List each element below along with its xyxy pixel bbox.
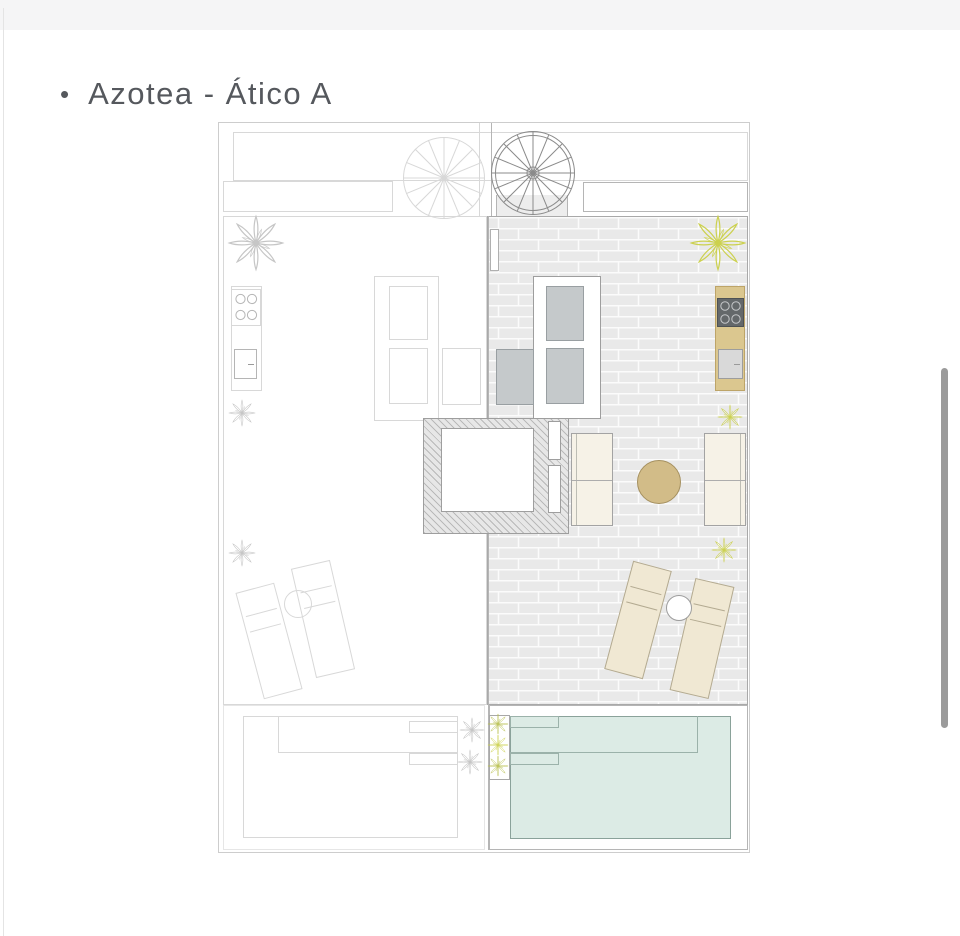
plant-icon [457,749,483,775]
pool-step [510,753,559,765]
sofa-cushion [546,286,584,341]
plant-icon [487,755,509,777]
sink-right [718,349,743,379]
scrollbar-thumb[interactable] [941,368,948,728]
pool-step [510,716,559,728]
page-left-border [3,8,4,936]
round-table [637,460,681,504]
pool-step [409,721,458,733]
plant-icon [228,539,256,567]
page-title-row: • Azotea - Ático A [60,76,333,112]
plant-icon [689,214,747,272]
top-bar [0,0,960,30]
outdoor-sofa [571,433,613,526]
spiral-staircase-right-icon [491,131,575,215]
pool-step [409,753,458,765]
side-table [666,595,692,621]
roof-strip-left [223,181,393,212]
elevator-cabin [441,428,534,512]
side-table-outline [284,590,312,618]
elevator-door [548,421,561,460]
plant-icon [459,717,485,743]
sofa-cushion [389,348,428,404]
stove-icon-right [717,298,744,327]
spiral-staircase-left-icon [403,137,485,219]
plant-icon [227,214,285,272]
floor-plan [218,122,750,853]
sink-left [234,349,257,379]
plant-icon [228,399,256,427]
page-title: Azotea - Ático A [88,76,333,112]
stove-icon-left [231,289,261,326]
sofa-cushion [442,348,481,405]
plant-icon [717,404,743,430]
sofa-cushion [546,348,584,404]
plant-icon [487,713,509,735]
sofa-cushion [496,349,534,405]
elevator-door [548,465,561,513]
plant-icon [487,734,509,756]
plant-icon [711,537,737,563]
terrace-door [490,229,499,271]
sofa-cushion [389,286,428,340]
outdoor-sofa [704,433,746,526]
roof-strip-right [583,182,748,212]
title-bullet: • [60,81,69,107]
